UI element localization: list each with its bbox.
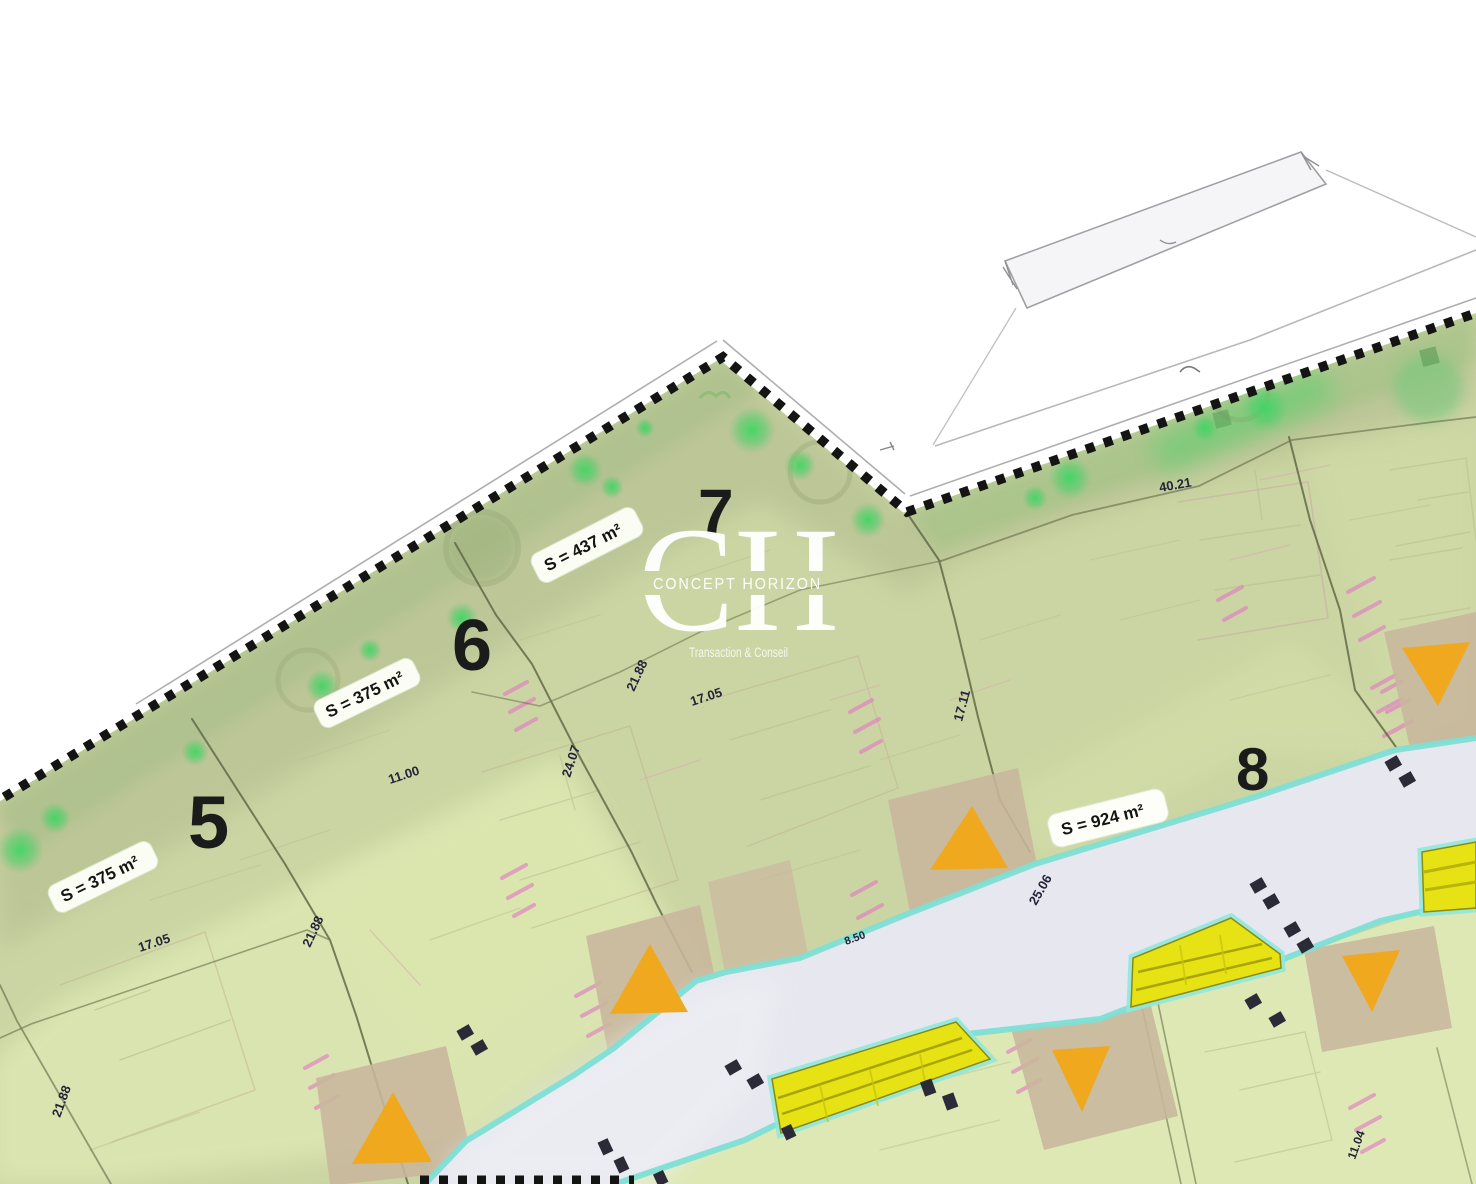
svg-text:Transaction & Conseil: Transaction & Conseil [689, 645, 788, 660]
svg-text:6: 6 [452, 606, 492, 686]
svg-text:CONCEPT HORIZON: CONCEPT HORIZON [653, 576, 822, 593]
svg-text:8: 8 [1236, 736, 1269, 803]
svg-text:5: 5 [188, 781, 229, 864]
